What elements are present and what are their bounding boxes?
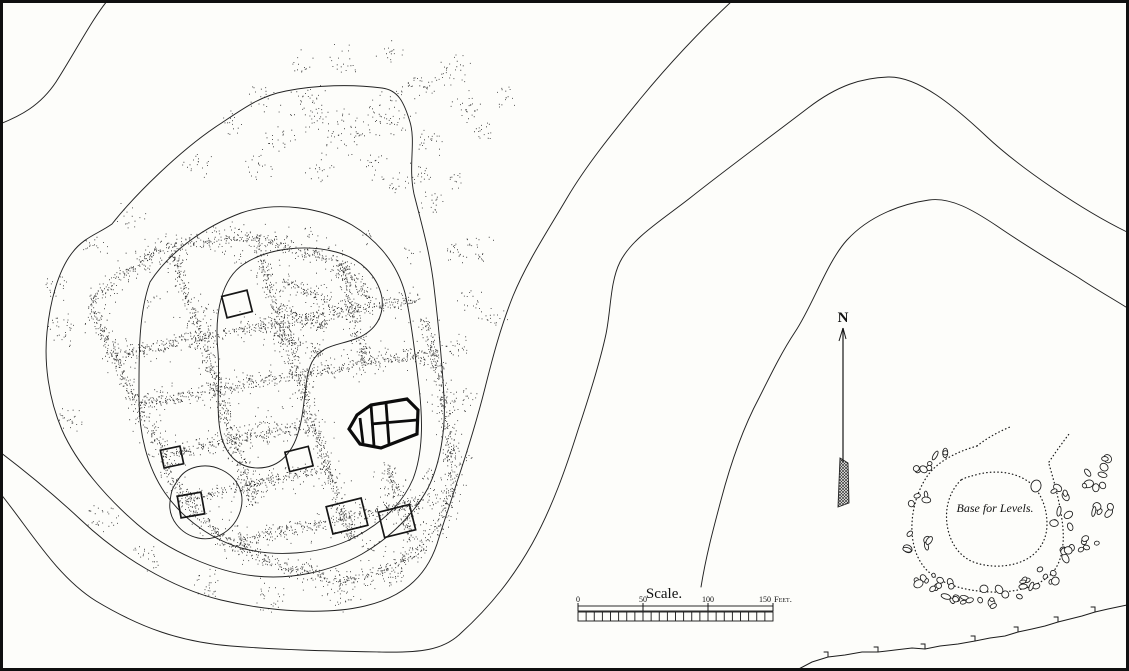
- scale-tick-label: 0: [576, 595, 580, 604]
- scale-tick-label: 100: [702, 595, 714, 604]
- base-for-levels-label: Base for Levels.: [957, 501, 1034, 515]
- standing-walls-building: [349, 399, 418, 448]
- scale-tick-label: 150: [759, 595, 771, 604]
- site-plan-map: N Scale. Feet. 050100150 Base for Levels…: [0, 0, 1129, 671]
- contour-lines: [0, 0, 1129, 652]
- map-border-frame: [2, 2, 1128, 670]
- scale-tick-label: 50: [639, 595, 647, 604]
- scale-bar-title: Scale.: [646, 586, 682, 602]
- north-label: N: [838, 310, 849, 326]
- base-for-levels-knoll: [902, 427, 1115, 609]
- map-canvas: N Scale. Feet. 050100150 Base for Levels…: [0, 0, 1129, 671]
- scale-bar-unit: Feet.: [774, 594, 792, 604]
- ruin-stipple: [46, 41, 515, 612]
- scale-bar: Scale. Feet. 050100150: [576, 586, 792, 621]
- wash-edge-hachure: [795, 605, 1127, 671]
- north-arrow: N: [838, 310, 849, 507]
